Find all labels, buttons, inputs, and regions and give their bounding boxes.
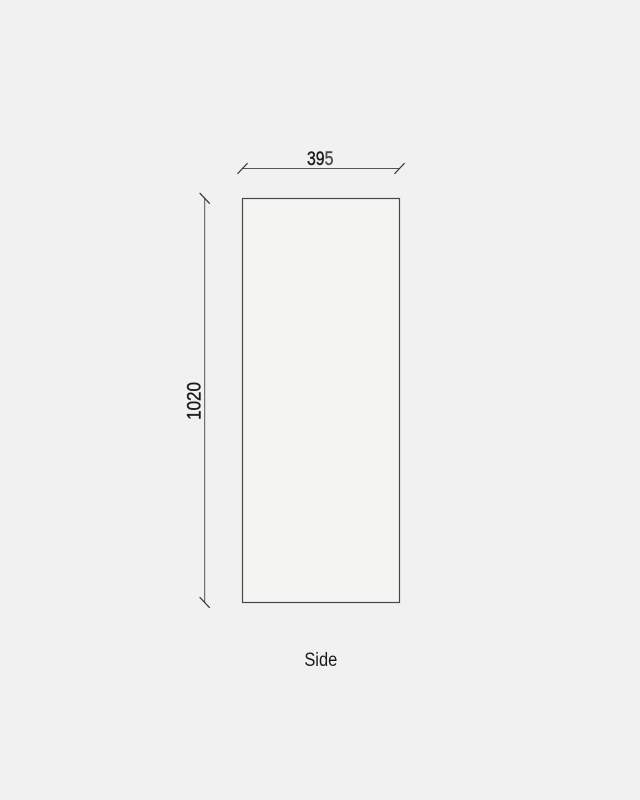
svg-text:395: 395 [307,148,334,170]
svg-text:1020: 1020 [184,382,205,420]
svg-text:Side: Side [304,649,337,671]
